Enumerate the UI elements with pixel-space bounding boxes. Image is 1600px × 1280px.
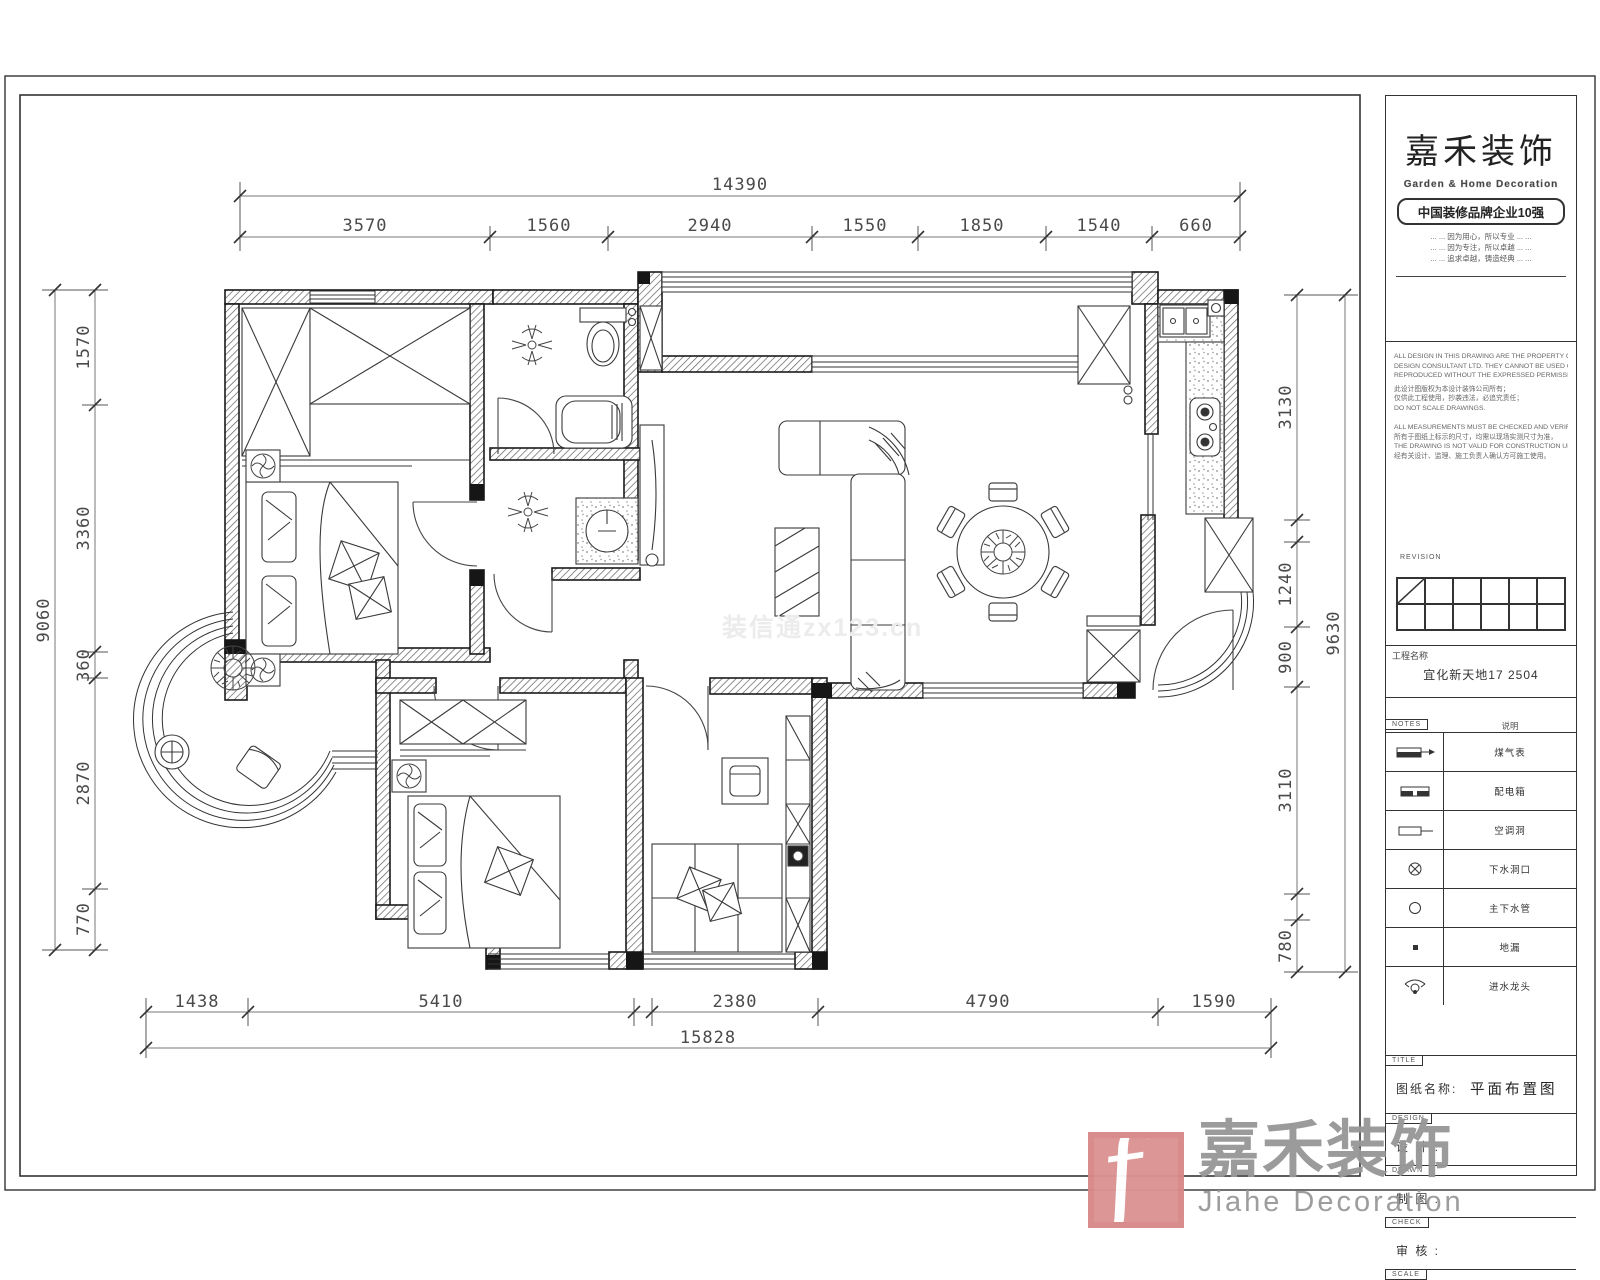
tatami-platform: [652, 844, 782, 952]
legend-row: 配电箱: [1386, 771, 1576, 810]
nightstand-lamp-top: [246, 450, 280, 482]
svg-text:1560: 1560: [527, 216, 572, 236]
bedroom1-door: [413, 502, 477, 566]
legend-row: 主下水管: [1386, 888, 1576, 927]
disclaimer-text: ALL DESIGN IN THIS DRAWING ARE THE PROPE…: [1386, 342, 1576, 550]
desk-chair: [722, 758, 768, 804]
svg-text:2380: 2380: [713, 992, 758, 1012]
svg-text:1240: 1240: [1276, 562, 1296, 607]
svg-text:1438: 1438: [175, 992, 220, 1012]
svg-text:1540: 1540: [1077, 216, 1122, 236]
svg-text:14390: 14390: [712, 175, 768, 195]
scale-section: SCALE 比 例 :: [1386, 1270, 1576, 1280]
svg-text:3570: 3570: [343, 216, 388, 236]
hall-vanity: [576, 498, 638, 564]
main-drain-symbol: [1393, 899, 1437, 917]
ceiling-lamp: [512, 325, 552, 365]
brand-slogans: ... ... 因为用心，所以专业 ... ... ... ... 因为专注，所…: [1386, 231, 1576, 264]
title-block: 嘉禾装饰 Garden & Home Decoration 中国装修品牌企业10…: [1385, 95, 1577, 1176]
project-value: 宜化新天地17 2504: [1386, 662, 1576, 688]
hall-ceiling-lamp: [508, 492, 548, 532]
svg-text:3130: 3130: [1276, 385, 1296, 430]
svg-text:900: 900: [1276, 640, 1296, 674]
legend-row: 进水龙头: [1386, 966, 1576, 1005]
master-bedroom: [242, 308, 470, 686]
double-bed: [246, 482, 398, 654]
floor-drain-symbol: [1393, 940, 1437, 954]
legend-panel: NOTES 图例 说明 煤气表 配电箱 空调洞 下水洞口 主下水管 地漏: [1386, 720, 1576, 1056]
bathtub: [556, 396, 632, 448]
bathroom: [512, 308, 636, 448]
svg-text:1550: 1550: [843, 216, 888, 236]
wardrobe: [242, 308, 470, 466]
svg-text:1850: 1850: [960, 216, 1005, 236]
right-balcony-glazing: [1158, 592, 1254, 697]
svg-text:1590: 1590: [1192, 992, 1237, 1012]
brand-panel: 嘉禾装饰 Garden & Home Decoration 中国装修品牌企业10…: [1386, 124, 1576, 342]
svg-text:2870: 2870: [74, 761, 94, 806]
site-watermark: 装信通zx123.cn: [722, 608, 923, 644]
kitchen-slide-door: [1148, 434, 1153, 520]
bed2: [408, 796, 560, 948]
revision-label: REVISION: [1400, 554, 1576, 561]
notes-tag: NOTES: [1385, 719, 1428, 730]
dining-table: [936, 483, 1070, 621]
tatami-bottom-window: [643, 954, 795, 969]
water-tap-symbol: [1393, 976, 1437, 996]
revision-panel: REVISION: [1386, 554, 1576, 646]
lamp2: [392, 760, 426, 792]
svg-text:5410: 5410: [419, 992, 464, 1012]
gas-meter-symbol: [1393, 744, 1437, 760]
brand-tagline: Garden & Home Decoration: [1386, 179, 1576, 190]
brand-name-cn: 嘉禾装饰: [1386, 124, 1576, 173]
ac-unit-right: [1078, 306, 1132, 404]
coffee-table: [775, 528, 819, 616]
living-bottom-window: [923, 683, 1083, 698]
drawing-sheet: 14390 3570 1560 2940 1550 1850 1540 660 …: [0, 0, 1600, 1280]
round-table: [155, 735, 189, 769]
furniture: [155, 300, 1253, 952]
project-label: 工程名称: [1386, 646, 1576, 662]
shelf-column: [786, 716, 810, 952]
svg-text:9630: 9630: [1324, 611, 1344, 656]
revision-grid: [1396, 577, 1566, 631]
bedroom1-top-window: [310, 291, 375, 303]
svg-text:3110: 3110: [1276, 768, 1296, 813]
wardrobe2: [400, 700, 526, 756]
brand-award-badge: 中国装修品牌企业10强: [1397, 198, 1564, 225]
svg-text:780: 780: [1276, 929, 1296, 963]
legend-row: 下水洞口: [1386, 849, 1576, 888]
duct-shaft: [1205, 518, 1253, 592]
svg-text:360: 360: [74, 648, 94, 682]
stove: [1190, 398, 1220, 456]
power-box-symbol: [1393, 783, 1437, 799]
project-name-panel: 工程名称 宜化新天地17 2504: [1386, 646, 1576, 698]
svg-text:4790: 4790: [966, 992, 1011, 1012]
bedroom2-bay-window: [488, 954, 609, 969]
tatami-door: [646, 686, 708, 750]
hall-door: [494, 574, 552, 632]
tv-cabinet: [640, 425, 664, 566]
title-section: TITLE 图纸名称: 平面布置图: [1386, 1056, 1576, 1114]
legend-row: 地漏: [1386, 927, 1576, 966]
shoe-cabinet: [1087, 616, 1140, 682]
ac-hole-symbol: [1393, 822, 1437, 838]
bathroom-door: [498, 398, 554, 454]
logo-text-en: Jiahe Decoration: [1198, 1186, 1464, 1219]
kitchen-sink: [1160, 305, 1210, 337]
ac-unit-left: [640, 306, 662, 370]
logo-mark: f: [1088, 1132, 1184, 1228]
svg-text:15828: 15828: [680, 1028, 736, 1048]
legend-row: 煤气表: [1386, 732, 1576, 771]
tatami-room: [652, 716, 810, 952]
balcony-chair: [235, 745, 282, 790]
svg-text:3360: 3360: [74, 506, 94, 551]
top-balcony-glazing: [662, 272, 1132, 292]
legend-col-desc: 说明: [1444, 720, 1576, 732]
company-watermark-logo: f 嘉禾装饰 Jiahe Decoration: [1088, 1118, 1593, 1268]
kitchen: [1158, 300, 1224, 514]
svg-text:1570: 1570: [74, 325, 94, 370]
svg-text:770: 770: [74, 902, 94, 936]
bedroom2: [392, 700, 560, 948]
svg-text:660: 660: [1179, 216, 1213, 236]
drain-opening-symbol: [1393, 860, 1437, 878]
logo-text-cn: 嘉禾装饰: [1198, 1118, 1464, 1184]
main-drain-pipe: [1208, 300, 1224, 316]
legend-row: 空调洞: [1386, 810, 1576, 849]
svg-text:2940: 2940: [688, 216, 733, 236]
living-top-opening: [812, 356, 1078, 372]
living-room: [640, 421, 1140, 692]
svg-text:9060: 9060: [34, 598, 54, 643]
